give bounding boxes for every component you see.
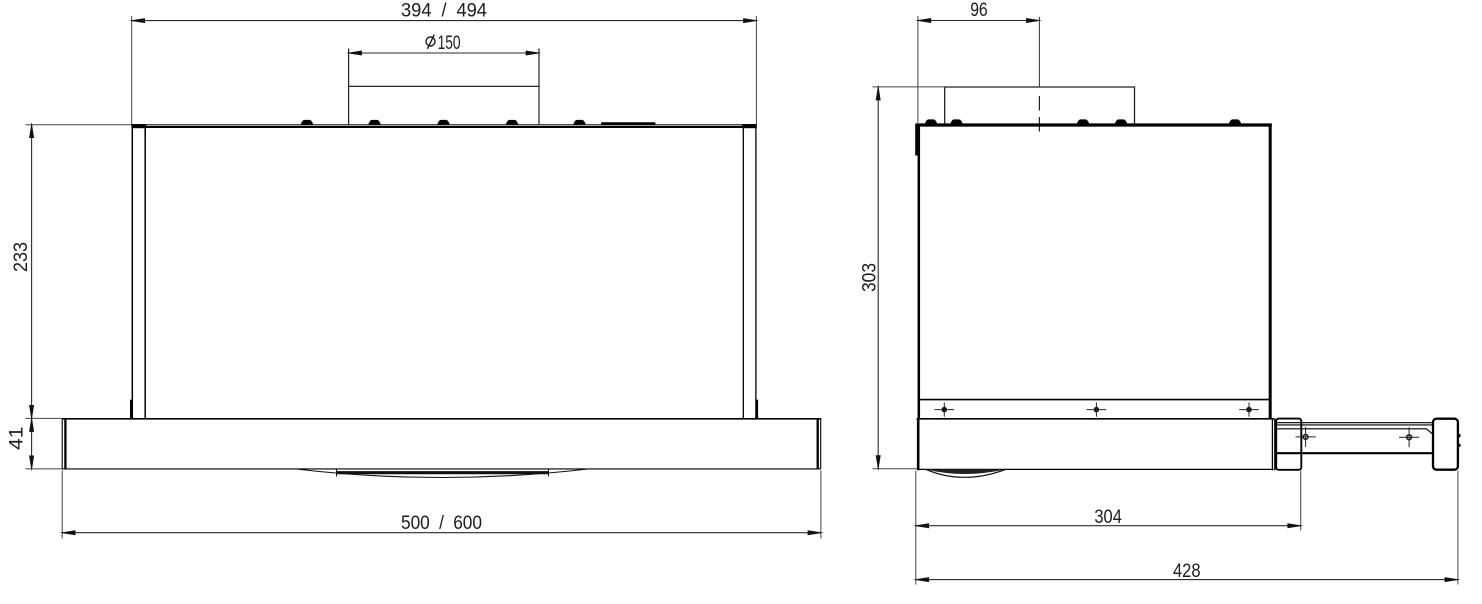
svg-text:500 / 600: 500 / 600 — [401, 513, 482, 534]
svg-text:303: 303 — [860, 263, 881, 292]
svg-text:41: 41 — [7, 427, 28, 451]
svg-text:233: 233 — [11, 242, 32, 272]
svg-text:428: 428 — [1173, 561, 1201, 582]
svg-text:394 / 494: 394 / 494 — [401, 1, 487, 22]
svg-text:150: 150 — [438, 32, 461, 54]
svg-text:304: 304 — [1094, 507, 1122, 528]
svg-text:96: 96 — [970, 0, 988, 21]
